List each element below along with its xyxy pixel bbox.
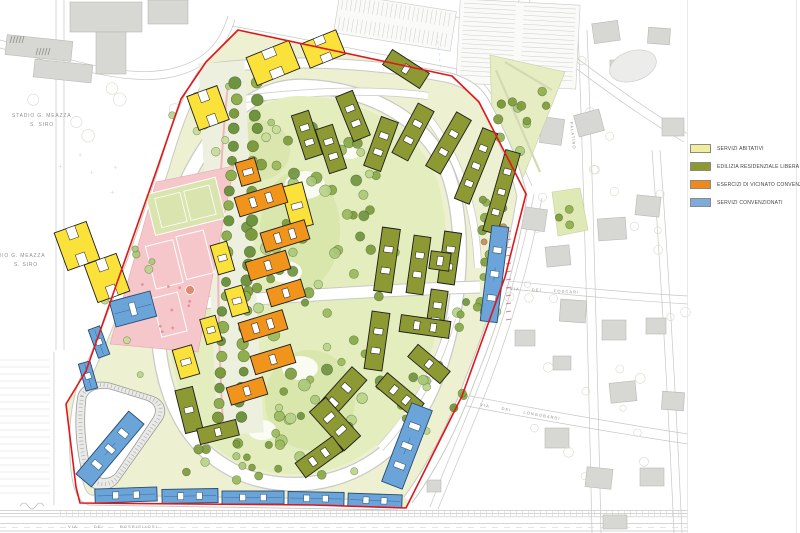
tree bbox=[616, 365, 624, 373]
context-building bbox=[559, 299, 586, 323]
promenade-tree bbox=[217, 307, 227, 317]
tree bbox=[323, 309, 332, 318]
street-label-foscari: VIA DEI FOSCARI bbox=[510, 286, 580, 295]
tree bbox=[366, 245, 376, 255]
tree bbox=[222, 136, 229, 143]
tree bbox=[274, 411, 284, 421]
promenade-tree bbox=[224, 186, 234, 196]
context-building bbox=[553, 356, 571, 370]
context-building bbox=[640, 468, 664, 486]
tree bbox=[275, 404, 282, 411]
legend-item-servizi-convenzionati: SERVIZI CONVENZIONATI bbox=[690, 198, 798, 207]
building-core bbox=[381, 267, 391, 274]
tree bbox=[481, 239, 487, 245]
promenade-tree bbox=[245, 229, 257, 241]
tree bbox=[288, 168, 299, 179]
context-building bbox=[5, 35, 73, 62]
promenade-tree bbox=[246, 215, 258, 227]
tree bbox=[201, 458, 210, 467]
tree bbox=[311, 395, 320, 404]
tree bbox=[630, 222, 638, 230]
legend-label: SERVIZI CONVENZIONATI bbox=[711, 200, 783, 206]
tree bbox=[272, 429, 280, 437]
tree bbox=[182, 468, 190, 476]
tree bbox=[566, 221, 574, 229]
building-core bbox=[363, 497, 369, 504]
tree bbox=[374, 292, 383, 301]
tree bbox=[462, 298, 469, 305]
legend-swatch-olive bbox=[690, 162, 711, 171]
context-building bbox=[597, 217, 626, 241]
tree bbox=[317, 470, 326, 479]
tree bbox=[418, 375, 428, 385]
red-tick bbox=[506, 311, 511, 312]
tree bbox=[610, 187, 619, 196]
tree bbox=[543, 363, 553, 373]
tree bbox=[497, 100, 506, 109]
tree bbox=[106, 83, 118, 95]
tree bbox=[523, 117, 531, 125]
tree bbox=[280, 388, 288, 396]
tree bbox=[330, 248, 341, 259]
tree bbox=[307, 176, 317, 186]
building-core bbox=[133, 491, 139, 498]
sports-dot bbox=[141, 283, 144, 286]
tree bbox=[640, 457, 649, 466]
tree bbox=[314, 280, 323, 289]
building-core bbox=[240, 494, 246, 501]
tree bbox=[349, 269, 358, 278]
stadium-label-2: STADIO G. MEAZZA bbox=[0, 253, 45, 259]
context-building bbox=[33, 59, 93, 83]
tree bbox=[272, 125, 280, 133]
tree bbox=[123, 337, 130, 344]
tree bbox=[565, 205, 573, 213]
promenade-tree bbox=[252, 123, 263, 134]
tree bbox=[249, 464, 256, 471]
sports-dot bbox=[159, 325, 162, 328]
building-core bbox=[304, 495, 310, 502]
tree bbox=[493, 115, 503, 125]
sports-dot bbox=[178, 286, 181, 289]
tree bbox=[357, 148, 365, 156]
tree bbox=[525, 294, 534, 303]
building-core bbox=[178, 493, 184, 500]
tree bbox=[654, 245, 663, 254]
building-core bbox=[436, 256, 443, 266]
tree bbox=[239, 462, 246, 469]
building-core bbox=[381, 497, 387, 504]
stadium-label-1: STADIO G. MEAZZA bbox=[12, 113, 71, 119]
context-building bbox=[96, 32, 126, 74]
red-tick bbox=[506, 319, 511, 320]
context-building bbox=[585, 467, 613, 490]
building-core bbox=[196, 492, 202, 499]
tree bbox=[233, 453, 240, 460]
sports-dot bbox=[167, 285, 170, 288]
tree bbox=[538, 87, 547, 96]
context-building bbox=[647, 27, 670, 44]
promenade-tree bbox=[221, 277, 230, 286]
plaza-mark bbox=[78, 153, 82, 157]
tree bbox=[355, 232, 364, 241]
context-building bbox=[662, 118, 684, 136]
tree bbox=[479, 196, 486, 203]
tree bbox=[149, 259, 155, 265]
tree bbox=[550, 295, 558, 303]
promenade-tree bbox=[228, 141, 238, 151]
tree bbox=[542, 102, 550, 110]
tree bbox=[321, 364, 332, 375]
tree bbox=[233, 440, 240, 447]
street-label-rospigliosi: VIA DEI ROSPIGLIOSI bbox=[68, 524, 158, 529]
plaza-mark bbox=[110, 190, 114, 194]
plaza-mark bbox=[90, 171, 94, 175]
legend-label: EDILIZIA RESIDENZIALE LIBERA bbox=[711, 164, 799, 170]
context-building bbox=[592, 20, 621, 43]
building-core bbox=[322, 495, 328, 502]
tree bbox=[283, 136, 292, 145]
legend-swatch-orange bbox=[690, 180, 711, 189]
plaza-mark bbox=[58, 165, 62, 169]
tree bbox=[508, 98, 517, 107]
promenade-tree bbox=[212, 412, 223, 423]
street-label-palatino: PALATINO bbox=[569, 122, 577, 150]
promenade-tree bbox=[228, 123, 239, 134]
tree bbox=[265, 441, 272, 448]
promenade-tree bbox=[247, 141, 258, 152]
building-core bbox=[413, 271, 422, 278]
tree bbox=[359, 211, 369, 221]
context-building bbox=[602, 320, 626, 340]
promenade-tree bbox=[215, 383, 225, 393]
tree bbox=[681, 307, 691, 317]
tree bbox=[635, 373, 645, 383]
stadium-label-2b: S. SIRO bbox=[14, 262, 38, 268]
context-building bbox=[609, 381, 637, 404]
tree bbox=[338, 358, 346, 366]
building-b bbox=[288, 492, 344, 506]
tree bbox=[71, 116, 82, 127]
tree bbox=[357, 393, 368, 404]
promenade-tree bbox=[229, 109, 239, 119]
building-core bbox=[446, 246, 455, 253]
legend-swatch-blue bbox=[690, 198, 711, 207]
promenade-tree bbox=[215, 368, 226, 379]
tree bbox=[342, 209, 352, 219]
tree bbox=[285, 413, 296, 424]
promenade-tree bbox=[249, 110, 260, 121]
promenade-tree bbox=[238, 350, 249, 361]
building-g bbox=[429, 251, 451, 272]
tree bbox=[268, 119, 275, 126]
promenade-tree bbox=[244, 246, 255, 257]
building-b bbox=[95, 487, 157, 503]
tree bbox=[620, 405, 626, 411]
promenade-tree bbox=[224, 216, 234, 226]
legend-label: ESERCIZI DI VICINATO CONVENZIONATI bbox=[711, 182, 800, 188]
tree bbox=[132, 246, 138, 252]
building-b bbox=[222, 491, 284, 504]
tree bbox=[211, 147, 220, 156]
building-core bbox=[430, 323, 437, 332]
promenade-tree bbox=[236, 412, 247, 423]
tree bbox=[232, 476, 241, 485]
legend-swatch-yellow bbox=[690, 144, 711, 153]
promenade-tree bbox=[226, 170, 237, 181]
tree bbox=[349, 336, 358, 345]
sheet-edge bbox=[688, 0, 797, 533]
tree bbox=[564, 447, 574, 457]
play-structure bbox=[186, 286, 195, 295]
tree bbox=[555, 214, 562, 221]
legend-item-servizi-abitativi: SERVIZI ABITATIVI bbox=[690, 144, 798, 153]
tree bbox=[323, 343, 331, 351]
sports-dot bbox=[170, 309, 173, 312]
sports-dot bbox=[188, 300, 191, 303]
building-core bbox=[384, 246, 394, 253]
building-core bbox=[433, 302, 442, 309]
tree bbox=[262, 133, 271, 142]
sports-dot bbox=[161, 330, 164, 333]
tree bbox=[297, 412, 305, 420]
context-pond bbox=[606, 44, 661, 87]
promenade-tree bbox=[224, 201, 234, 211]
tree bbox=[577, 56, 586, 65]
building-core bbox=[413, 321, 420, 330]
building-core bbox=[490, 271, 499, 278]
tree bbox=[634, 429, 642, 437]
tree bbox=[289, 248, 298, 257]
tree bbox=[301, 299, 309, 307]
tree bbox=[275, 465, 282, 472]
context-building bbox=[661, 391, 684, 410]
masterplan-map: STADIO G. MEAZZA S. SIRO STADIO G. MEAZZ… bbox=[0, 0, 800, 533]
tree bbox=[272, 161, 281, 170]
promenade-tree bbox=[229, 77, 241, 89]
context-building bbox=[427, 480, 441, 492]
tree bbox=[285, 368, 297, 380]
promenade-tree bbox=[251, 94, 263, 106]
promenade-tree bbox=[217, 351, 227, 361]
context-building bbox=[545, 245, 571, 267]
building-core bbox=[487, 294, 496, 301]
masterplan-canvas: STADIO G. MEAZZA S. SIRO STADIO G. MEAZZ… bbox=[0, 0, 800, 533]
context-building bbox=[646, 318, 666, 334]
context-building bbox=[545, 428, 569, 448]
tree bbox=[194, 445, 204, 455]
tree bbox=[28, 94, 39, 105]
red-tick bbox=[506, 295, 511, 296]
building-core bbox=[371, 347, 381, 354]
context-building bbox=[603, 515, 627, 529]
sports-dot bbox=[187, 304, 190, 307]
promenade-tree bbox=[231, 94, 242, 105]
stadium-label-1b: S. SIRO bbox=[30, 122, 54, 128]
context-building bbox=[574, 109, 605, 137]
plaza-mark bbox=[113, 165, 117, 169]
red-tick bbox=[506, 303, 511, 304]
tree bbox=[113, 93, 126, 106]
promenade-tree bbox=[214, 398, 224, 408]
tree bbox=[243, 454, 250, 461]
tree bbox=[145, 265, 153, 273]
tree bbox=[538, 193, 546, 201]
street-label-longobardi: VIA DEI LONGOBARDI bbox=[480, 402, 561, 421]
legend-label: SERVIZI ABITATIVI bbox=[711, 146, 764, 152]
tree bbox=[298, 379, 310, 391]
tree bbox=[255, 472, 263, 480]
tree bbox=[351, 468, 358, 475]
legend-item-edilizia-residenziale: EDILIZIA RESIDENZIALE LIBERA bbox=[690, 162, 798, 171]
tree bbox=[365, 170, 373, 178]
tree bbox=[409, 373, 418, 382]
context-building bbox=[148, 0, 188, 24]
tree bbox=[351, 175, 362, 186]
tree bbox=[82, 129, 95, 142]
context-building bbox=[70, 2, 142, 32]
tree bbox=[252, 283, 262, 293]
tree bbox=[455, 323, 464, 332]
tree bbox=[517, 101, 526, 110]
legend-item-esercizi-vicinato: ESERCIZI DI VICINATO CONVENZIONATI bbox=[690, 180, 798, 189]
tree bbox=[359, 190, 368, 199]
building-core bbox=[373, 328, 383, 335]
building-core bbox=[113, 492, 119, 499]
context-building bbox=[635, 195, 661, 217]
promenade-tree bbox=[222, 231, 232, 241]
tree bbox=[457, 311, 464, 318]
tree bbox=[137, 372, 143, 378]
promenade-tree bbox=[239, 367, 248, 376]
building-core bbox=[493, 247, 502, 254]
tree bbox=[275, 440, 285, 450]
tree bbox=[253, 303, 263, 313]
tree bbox=[606, 132, 614, 140]
context-building bbox=[515, 330, 535, 346]
legend: SERVIZI ABITATIVI EDILIZIA RESIDENZIALE … bbox=[690, 144, 798, 216]
tree bbox=[531, 424, 539, 432]
building-b bbox=[162, 489, 218, 504]
building-core bbox=[415, 252, 424, 259]
building-core bbox=[260, 494, 266, 501]
sports-dot bbox=[171, 326, 174, 329]
tree bbox=[320, 185, 332, 197]
